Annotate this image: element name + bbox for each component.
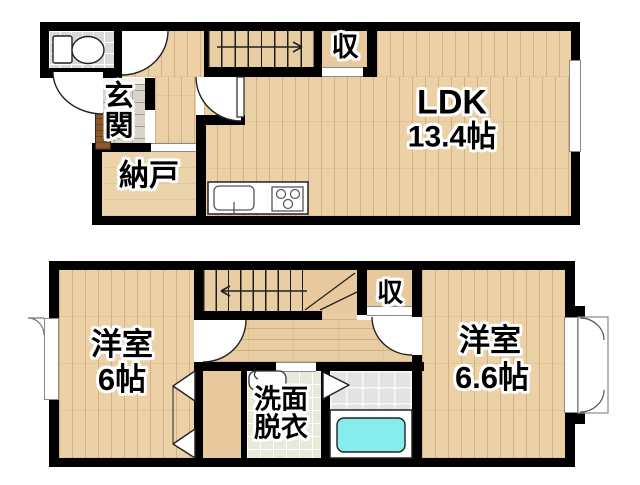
ldk-floor-upper bbox=[377, 31, 571, 77]
label-storage: 納戸 bbox=[119, 162, 179, 193]
wall-window-return-bottom bbox=[575, 413, 585, 424]
label-bedroom-right: 洋室 bbox=[459, 325, 521, 357]
label-bedroom-right-size: 6.6帖 bbox=[455, 362, 529, 394]
closet-1f-sliding-door bbox=[322, 67, 363, 77]
label-washroom: 洗面脱衣 bbox=[250, 386, 312, 441]
wall-washroom-top bbox=[241, 362, 424, 371]
bedroom-left-window bbox=[44, 318, 59, 400]
wall-bedroom-stairs bbox=[194, 270, 203, 311]
hallway-floor-1f-lower bbox=[155, 77, 196, 143]
stairs-2f-winder bbox=[303, 270, 357, 311]
left-window-casement bbox=[28, 318, 44, 335]
wall-closet2-right bbox=[412, 261, 422, 317]
label-ldk-size: 13.4帖 bbox=[408, 123, 496, 154]
label-closet-1f: 収 bbox=[332, 34, 359, 62]
wall-toilet-right bbox=[114, 31, 122, 68]
wall-washroom-bath bbox=[321, 371, 330, 458]
wall-entrance-hall bbox=[145, 78, 155, 110]
wall-closet-strip-front bbox=[194, 362, 203, 458]
hallway-floor-1f bbox=[122, 31, 204, 77]
label-bedroom-left-size: 6帖 bbox=[98, 364, 146, 396]
wall-window-return-top bbox=[575, 306, 585, 317]
closet-strip-floor bbox=[203, 371, 241, 458]
toilet-room-floor bbox=[49, 31, 114, 68]
wall-1f-top bbox=[40, 22, 580, 31]
wall-2f-top bbox=[49, 261, 575, 270]
wall-toilet-bottom bbox=[40, 68, 122, 78]
washroom-doorway bbox=[276, 362, 316, 372]
storage-sliding-door bbox=[151, 143, 196, 152]
wall-washroom-left bbox=[241, 362, 247, 458]
wall-stairs-bottom-1f bbox=[204, 67, 322, 77]
label-ldk: LDK bbox=[417, 86, 487, 121]
stairs-1f bbox=[208, 31, 314, 67]
wall-stairs-bottom-2f bbox=[194, 311, 322, 320]
wall-1f-bottom bbox=[92, 216, 580, 225]
hall-2f-floor bbox=[203, 320, 412, 362]
bedroom-right-window bbox=[564, 317, 578, 413]
ldk-window bbox=[569, 60, 581, 152]
hall-2f-floor-a bbox=[322, 311, 357, 320]
wall-2f-bottom bbox=[49, 458, 575, 467]
wall-storage-left bbox=[92, 143, 102, 225]
label-closet-2f: 収 bbox=[377, 280, 403, 307]
bathroom-floor bbox=[330, 371, 412, 458]
ldk-floor bbox=[204, 77, 571, 216]
floor-plan-canvas: LDK 13.4帖 収 玄関 納戸 洋室 6帖 洗面脱衣 収 洋室 6.6帖 bbox=[0, 0, 640, 485]
wall-stairs-closet bbox=[314, 31, 322, 67]
label-entrance: 玄関 bbox=[102, 82, 135, 141]
wall-kitchen-left bbox=[196, 115, 206, 225]
wall-stairs-closet2 bbox=[357, 261, 367, 315]
right-window-casement bbox=[578, 317, 608, 413]
wall-stairs-left bbox=[204, 31, 208, 67]
wall-closet1-corner bbox=[363, 67, 377, 77]
stairs-2f bbox=[203, 270, 303, 311]
label-bedroom-left: 洋室 bbox=[91, 329, 153, 361]
